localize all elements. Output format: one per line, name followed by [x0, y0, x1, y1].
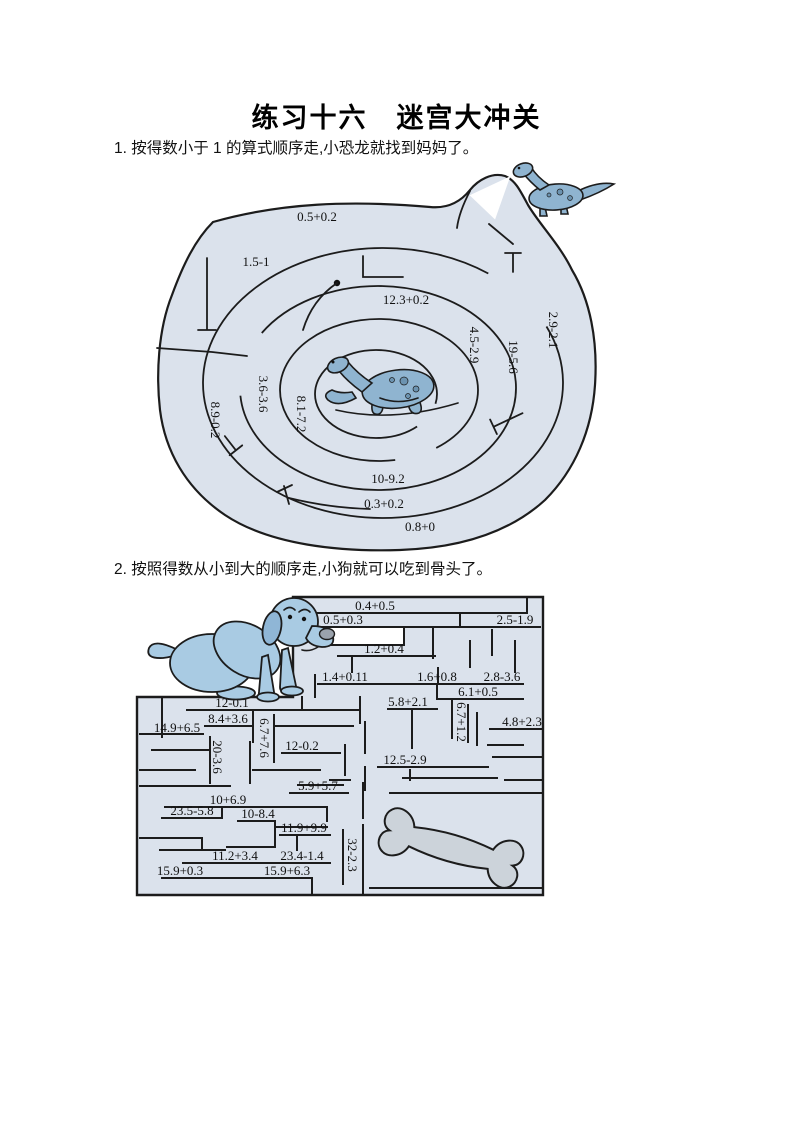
expression-label: 2.8-3.6	[484, 669, 521, 684]
expression-label: 15.9+0.3	[157, 863, 203, 878]
expression-label: 4.5-2.9	[467, 327, 482, 364]
expression-label: 32-2.3	[345, 838, 360, 872]
expression-label: 6.1+0.5	[458, 684, 498, 699]
expression-label: 8.1-7.2	[294, 396, 309, 433]
expression-label: 6.7+1.2	[454, 702, 469, 742]
expression-label: 12.3+0.2	[383, 292, 429, 307]
expression-label: 5.8+2.1	[388, 694, 428, 709]
expression-label: 0.5+0.3	[323, 612, 363, 627]
expression-label: 2.5-1.9	[497, 612, 534, 627]
dog-nose	[320, 629, 335, 640]
expression-label: 20-3.6	[210, 740, 225, 774]
question-2: 2. 按照得数从小到大的顺序走,小狗就可以吃到骨头了。	[114, 557, 734, 579]
expression-label: 12.5-2.9	[383, 752, 426, 767]
worksheet-page: 练习十六 迷宫大冲关 1. 按得数小于 1 的算式顺序走,小恐龙就找到妈妈了。 …	[0, 0, 793, 1122]
expression-label: 3.6-3.6	[256, 376, 271, 413]
expression-label: 6.7+7.6	[257, 718, 272, 758]
expression-label: 10-8.4	[241, 806, 275, 821]
expression-label: 1.5-1	[242, 254, 269, 269]
expression-label: 8.9-0.2	[208, 402, 223, 439]
expression-label: 14.9+6.5	[154, 720, 200, 735]
maze1-figure: 0.5+0.2 1.5-1 12.3+0.2 4.5-2.9 19-5.6 2.…	[140, 158, 630, 560]
expression-label: 10+6.9	[210, 792, 247, 807]
expression-label: 10-9.2	[371, 471, 405, 486]
expression-label: 0.4+0.5	[355, 598, 395, 613]
expression-label: 15.9+6.3	[264, 863, 310, 878]
expression-label: 11.2+3.4	[212, 848, 258, 863]
maze2-figure: 0.4+0.5 0.5+0.3 2.5-1.9 1.2+0.4 1.4+0.11…	[130, 588, 555, 903]
expression-label: 5.9+5.7	[298, 778, 338, 793]
expression-label: 1.4+0.11	[322, 669, 368, 684]
expression-label: 23.4-1.4	[280, 848, 324, 863]
expression-label: 0.5+0.2	[297, 209, 337, 224]
expression-label: 19-5.6	[506, 340, 521, 374]
expression-label: 0.8+0	[405, 519, 435, 534]
question-1: 1. 按得数小于 1 的算式顺序走,小恐龙就找到妈妈了。	[114, 136, 734, 158]
page-title: 练习十六 迷宫大冲关	[0, 96, 793, 135]
expression-label: 23.5-5.8	[170, 803, 213, 818]
expression-label: 11.9+9.9	[281, 820, 327, 835]
expression-label: 2.9-2.1	[546, 312, 561, 349]
expression-label: 12-0.2	[285, 738, 319, 753]
expression-label: 1.6+0.8	[417, 669, 457, 684]
maze1-outline	[158, 175, 595, 550]
expression-label: 1.2+0.4	[364, 641, 404, 656]
expression-label: 4.8+2.3	[502, 714, 542, 729]
expression-label: 8.4+3.6	[208, 711, 248, 726]
expression-label: 0.3+0.2	[364, 496, 404, 511]
